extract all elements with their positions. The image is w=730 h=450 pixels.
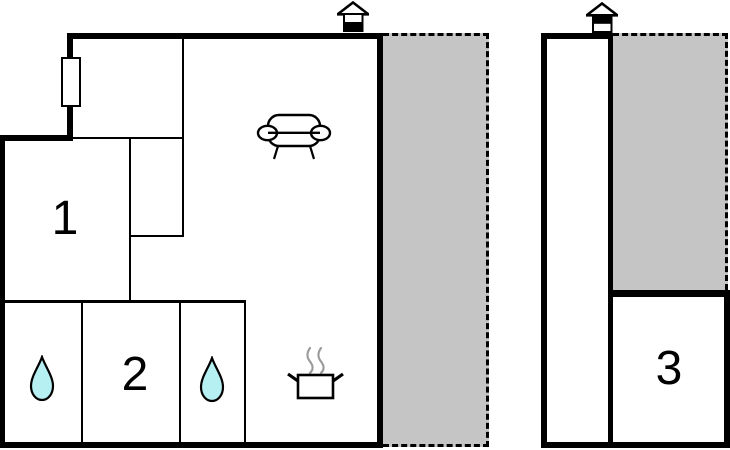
water-drop-icon [199,356,225,403]
wall [724,290,730,448]
steam-line [307,348,312,373]
hall-area [73,39,182,137]
sofa-icon [256,108,332,162]
wall [179,303,181,442]
outdoor-terrace-right [613,33,728,290]
room-3-label: 3 [656,345,683,393]
wall [70,33,383,39]
wall [0,135,5,448]
wall [608,33,613,448]
wall [541,33,547,448]
wall [129,137,131,303]
corridor-area [547,39,608,442]
room-2-label: 2 [122,351,149,399]
wall [610,290,730,297]
house-ground-floor-icon [336,1,370,33]
wall [541,442,730,448]
small-room-area [131,139,182,235]
room-1-label: 1 [52,195,79,243]
outdoor-terrace-left [383,33,489,447]
floor-plan-canvas: 1 2 3 [0,0,730,450]
window-icon [61,57,81,107]
wall [244,303,246,442]
wall [73,137,183,139]
wall [182,39,184,237]
house-upper-floor-icon [585,2,619,34]
steam-line [318,348,323,373]
wall [377,33,383,448]
wall [0,135,73,141]
wall [0,442,383,448]
wall [0,300,246,303]
wall [81,303,83,442]
cooking-pot-icon [283,343,347,401]
water-drop-icon [29,355,55,402]
wall [131,235,182,237]
